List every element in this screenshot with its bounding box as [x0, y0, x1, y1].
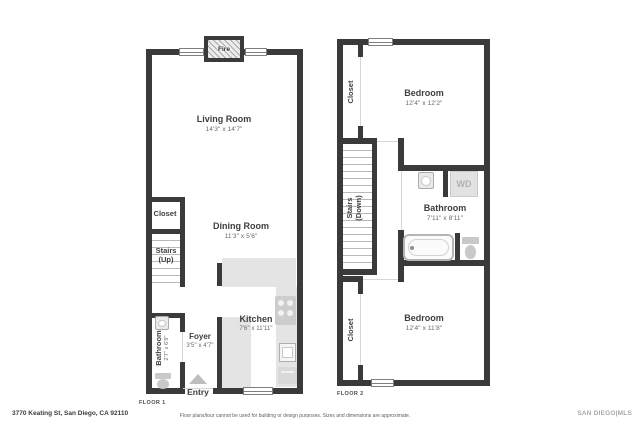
disclaimer-text: Floor plans/tour cannot be used for buil…	[165, 413, 425, 419]
room-name: Stairs (Up)	[156, 246, 177, 264]
burner-icon	[278, 300, 284, 306]
bathroom-sink-icon	[418, 172, 434, 189]
room-name: Dining Room	[191, 221, 291, 232]
entry-label: Entry	[173, 387, 223, 397]
mls-logo: SAN DIEGO|MLS	[540, 410, 632, 417]
window	[179, 48, 204, 56]
room-label-dining: Dining Room 11'3" x 5'6"	[191, 221, 291, 241]
wall	[146, 49, 152, 394]
room-label-stairs-down: Stairs (Down)	[346, 185, 368, 231]
room-name: Bedroom	[374, 313, 474, 324]
fireplace-label: Fire	[218, 46, 230, 53]
room-name: Living Room	[174, 114, 274, 125]
window	[368, 38, 393, 46]
wall	[358, 45, 363, 57]
property-address: 3770 Keating St, San Diego, CA 92110	[12, 410, 128, 417]
room-dims: 2'7" x 6'9"	[164, 313, 171, 383]
toilet-icon	[462, 237, 479, 244]
room-name: Bathroom	[154, 313, 163, 383]
wall	[398, 266, 404, 282]
floor2-caption: FLOOR 2	[337, 391, 364, 397]
bedroom-door-opening	[363, 279, 398, 280]
window	[245, 48, 267, 56]
closet-door-opening	[360, 57, 361, 126]
wall	[455, 233, 460, 266]
room-name: Bathroom	[395, 203, 495, 214]
entry-arrow-icon	[189, 374, 207, 384]
room-label-foyer: Foyer 3'5" x 4'7"	[170, 332, 230, 350]
room-dims: 14'3" x 14'7"	[174, 126, 274, 134]
room-label-living: Living Room 14'3" x 14'7"	[174, 114, 274, 134]
room-label-bathroom: Bathroom 7'11" x 8'11"	[395, 203, 495, 223]
washer-dryer: WD	[450, 171, 478, 197]
room-name: Bedroom	[374, 88, 474, 99]
floor1-caption: FLOOR 1	[139, 400, 166, 406]
room-dims: 3'5" x 4'7"	[170, 343, 230, 350]
room-name: Entry	[187, 387, 209, 397]
wall	[337, 380, 490, 386]
dishwasher-icon	[278, 367, 297, 384]
room-name: Stairs (Down)	[345, 195, 363, 220]
room-dims: 12'4" x 12'2"	[374, 100, 474, 108]
bedroom-door-opening	[377, 141, 398, 142]
room-label-closet-bottom: Closet	[346, 306, 356, 354]
window	[371, 379, 394, 387]
room-name: Foyer	[170, 332, 230, 342]
kitchen-sink-icon	[279, 343, 296, 362]
room-dims: 11'3" x 5'6"	[191, 233, 291, 241]
kitchen-counter	[222, 258, 296, 287]
room-name: Closet	[346, 81, 355, 104]
closet-door-opening	[360, 294, 361, 365]
washer-dryer-label: WD	[457, 179, 472, 189]
room-label-bedroom-top: Bedroom 12'4" x 12'2"	[374, 88, 474, 108]
room-label-bathroom: Bathroom 2'7" x 6'9"	[154, 313, 176, 383]
room-name: Closet	[346, 319, 355, 342]
burner-icon	[287, 300, 293, 306]
fireplace: Fire	[204, 36, 244, 62]
room-name: Closet	[141, 209, 189, 218]
room-dims: 7'11" x 8'11"	[395, 215, 495, 223]
wall	[358, 365, 363, 380]
wall	[297, 49, 303, 394]
bathtub-icon	[403, 234, 454, 261]
wall	[372, 138, 377, 275]
wall	[358, 282, 363, 294]
window	[243, 387, 273, 395]
room-label-bedroom-bottom: Bedroom 12'4" x 11'8"	[374, 313, 474, 333]
room-dims: 12'4" x 11'8"	[374, 325, 474, 333]
floorplan-canvas: Fire Living Room 14'3" x 14'7" Dining Ro…	[0, 0, 640, 427]
room-name: Kitchen	[216, 314, 296, 325]
room-label-kitchen: Kitchen 7'6" x 11'11"	[216, 314, 296, 333]
toilet-icon	[465, 245, 476, 259]
room-label-closet-top: Closet	[346, 68, 356, 116]
room-label-stairs-up: Stairs (Up)	[149, 247, 183, 264]
room-label-closet: Closet	[141, 209, 189, 218]
wall	[443, 171, 448, 197]
wall	[337, 269, 377, 275]
wall	[180, 313, 185, 332]
